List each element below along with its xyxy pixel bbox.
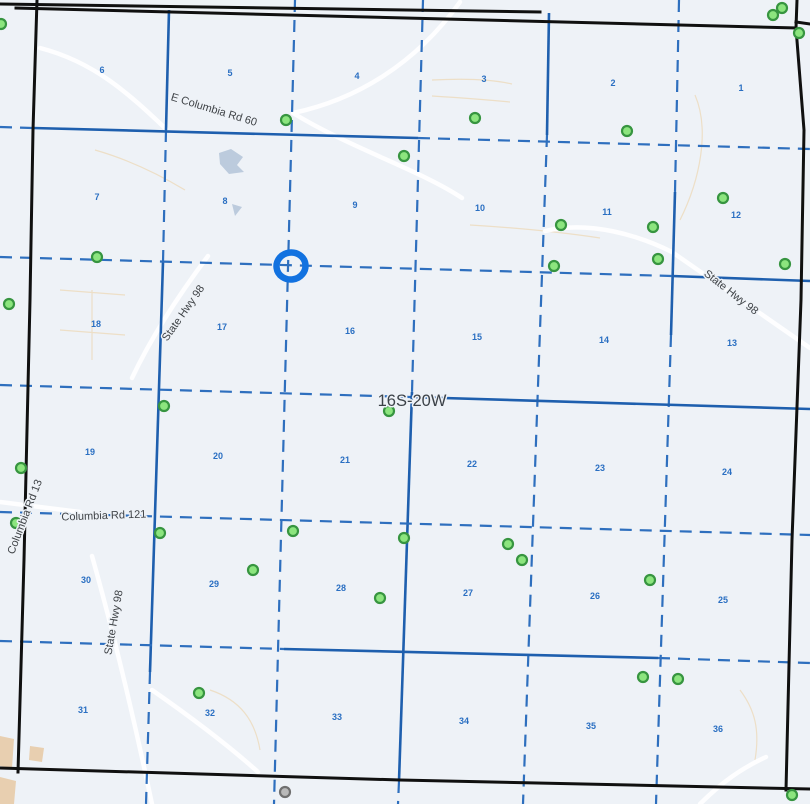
township-label: 16S-20W — [378, 392, 447, 410]
well-marker[interactable] — [768, 10, 778, 20]
section-number: 36 — [713, 724, 723, 734]
well-marker[interactable] — [281, 115, 291, 125]
section-number: 12 — [731, 210, 741, 220]
section-number: 25 — [718, 595, 728, 605]
section-number: 17 — [217, 322, 227, 332]
urban-area — [29, 746, 44, 762]
well-marker[interactable] — [4, 299, 14, 309]
well-marker[interactable] — [718, 193, 728, 203]
well-marker[interactable] — [556, 220, 566, 230]
well-marker[interactable] — [375, 593, 385, 603]
section-number: 33 — [332, 712, 342, 722]
well-marker[interactable] — [92, 252, 102, 262]
section-number: 31 — [78, 705, 88, 715]
section-number: 7 — [94, 192, 99, 202]
gray-well-marker[interactable] — [280, 787, 290, 797]
well-marker[interactable] — [399, 533, 409, 543]
section-number: 27 — [463, 588, 473, 598]
section-number: 15 — [472, 332, 482, 342]
section-number: 14 — [599, 335, 609, 345]
well-marker[interactable] — [645, 575, 655, 585]
section-number: 1 — [738, 83, 743, 93]
well-marker[interactable] — [248, 565, 258, 575]
map-viewport[interactable]: E Columbia Rd 60State Hwy 98State Hwy 98… — [0, 0, 810, 804]
well-marker[interactable] — [0, 19, 6, 29]
section-number: 28 — [336, 583, 346, 593]
well-marker[interactable] — [470, 113, 480, 123]
section-number: 24 — [722, 467, 732, 477]
section-number: 5 — [227, 68, 232, 78]
section-number: 32 — [205, 708, 215, 718]
well-marker[interactable] — [787, 790, 797, 800]
well-marker[interactable] — [638, 672, 648, 682]
well-marker[interactable] — [673, 674, 683, 684]
section-number: 4 — [354, 71, 359, 81]
section-number: 23 — [595, 463, 605, 473]
urban-area — [0, 777, 16, 804]
section-number: 16 — [345, 326, 355, 336]
section-number: 30 — [81, 575, 91, 585]
section-number: 11 — [602, 207, 612, 217]
well-marker[interactable] — [16, 463, 26, 473]
section-number: 9 — [352, 200, 357, 210]
well-marker[interactable] — [794, 28, 804, 38]
township-boundary — [796, 0, 797, 28]
section-number: 34 — [459, 716, 469, 726]
section-number: 10 — [475, 203, 485, 213]
well-marker[interactable] — [159, 401, 169, 411]
section-number: 19 — [85, 447, 95, 457]
section-number: 20 — [213, 451, 223, 461]
well-marker[interactable] — [503, 539, 513, 549]
well-marker[interactable] — [622, 126, 632, 136]
well-marker[interactable] — [288, 526, 298, 536]
well-marker[interactable] — [648, 222, 658, 232]
well-marker[interactable] — [155, 528, 165, 538]
well-marker[interactable] — [780, 259, 790, 269]
section-number: 8 — [222, 196, 227, 206]
section-number: 35 — [586, 721, 596, 731]
section-number: 26 — [590, 591, 600, 601]
section-number: 29 — [209, 579, 219, 589]
section-number: 13 — [727, 338, 737, 348]
well-marker[interactable] — [194, 688, 204, 698]
urban-area — [0, 736, 14, 768]
well-marker[interactable] — [517, 555, 527, 565]
section-number: 3 — [481, 74, 486, 84]
well-marker[interactable] — [399, 151, 409, 161]
section-number: 21 — [340, 455, 350, 465]
township-boundary — [796, 22, 810, 24]
section-number: 2 — [610, 78, 615, 88]
map-canvas[interactable]: E Columbia Rd 60State Hwy 98State Hwy 98… — [0, 0, 810, 804]
well-marker[interactable] — [777, 3, 787, 13]
section-number: 22 — [467, 459, 477, 469]
section-number: 18 — [91, 319, 101, 329]
section-number: 6 — [99, 65, 104, 75]
well-marker[interactable] — [549, 261, 559, 271]
well-marker[interactable] — [653, 254, 663, 264]
